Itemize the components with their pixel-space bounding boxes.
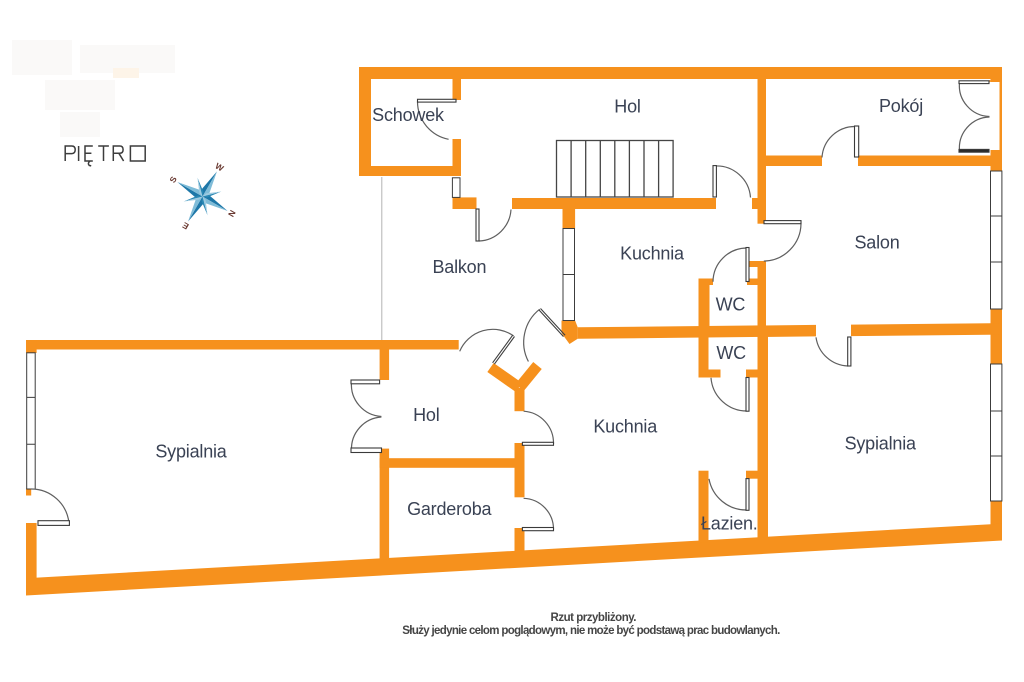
svg-text:S: S	[167, 174, 179, 184]
svg-text:Hol: Hol	[413, 405, 439, 425]
svg-text:Pokój: Pokój	[879, 96, 923, 116]
svg-text:Sypialnia: Sypialnia	[155, 442, 227, 462]
svg-text:Sypialnia: Sypialnia	[845, 434, 917, 454]
svg-text:Rzut przybliżony.: Rzut przybliżony.	[551, 612, 637, 624]
svg-text:WC: WC	[716, 343, 746, 363]
svg-text:Hol: Hol	[614, 97, 640, 117]
svg-text:Schowek: Schowek	[372, 105, 445, 125]
svg-text:N: N	[226, 208, 238, 218]
svg-text:Służy jedynie celom poglądowym: Służy jedynie celom poglądowym, nie może…	[402, 625, 780, 637]
svg-text:Kuchnia: Kuchnia	[593, 417, 658, 437]
svg-text:Łazien.: Łazien.	[701, 514, 758, 534]
svg-text:E: E	[180, 220, 190, 232]
svg-text:Garderoba: Garderoba	[407, 499, 492, 519]
svg-text:Balkon: Balkon	[432, 257, 486, 277]
svg-text:Kuchnia: Kuchnia	[620, 244, 685, 264]
svg-text:Salon: Salon	[854, 233, 899, 253]
svg-text:WC: WC	[716, 295, 746, 315]
svg-text:W: W	[214, 161, 227, 174]
